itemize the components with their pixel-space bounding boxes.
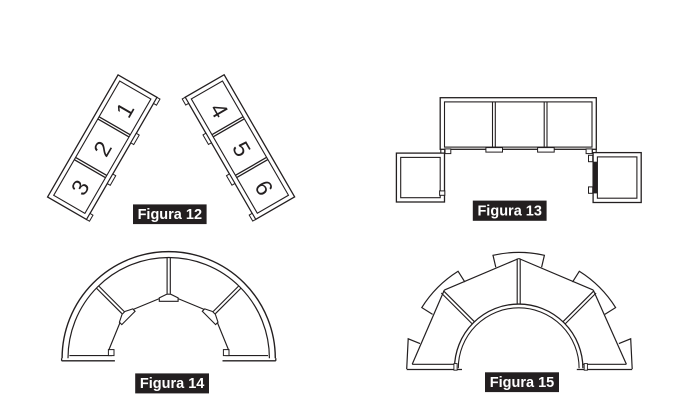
svg-text:Figura 15: Figura 15 (490, 375, 554, 391)
svg-text:Figura 13: Figura 13 (477, 204, 541, 220)
svg-text:Figura 14: Figura 14 (140, 376, 204, 392)
svg-text:Figura 12: Figura 12 (138, 207, 202, 223)
